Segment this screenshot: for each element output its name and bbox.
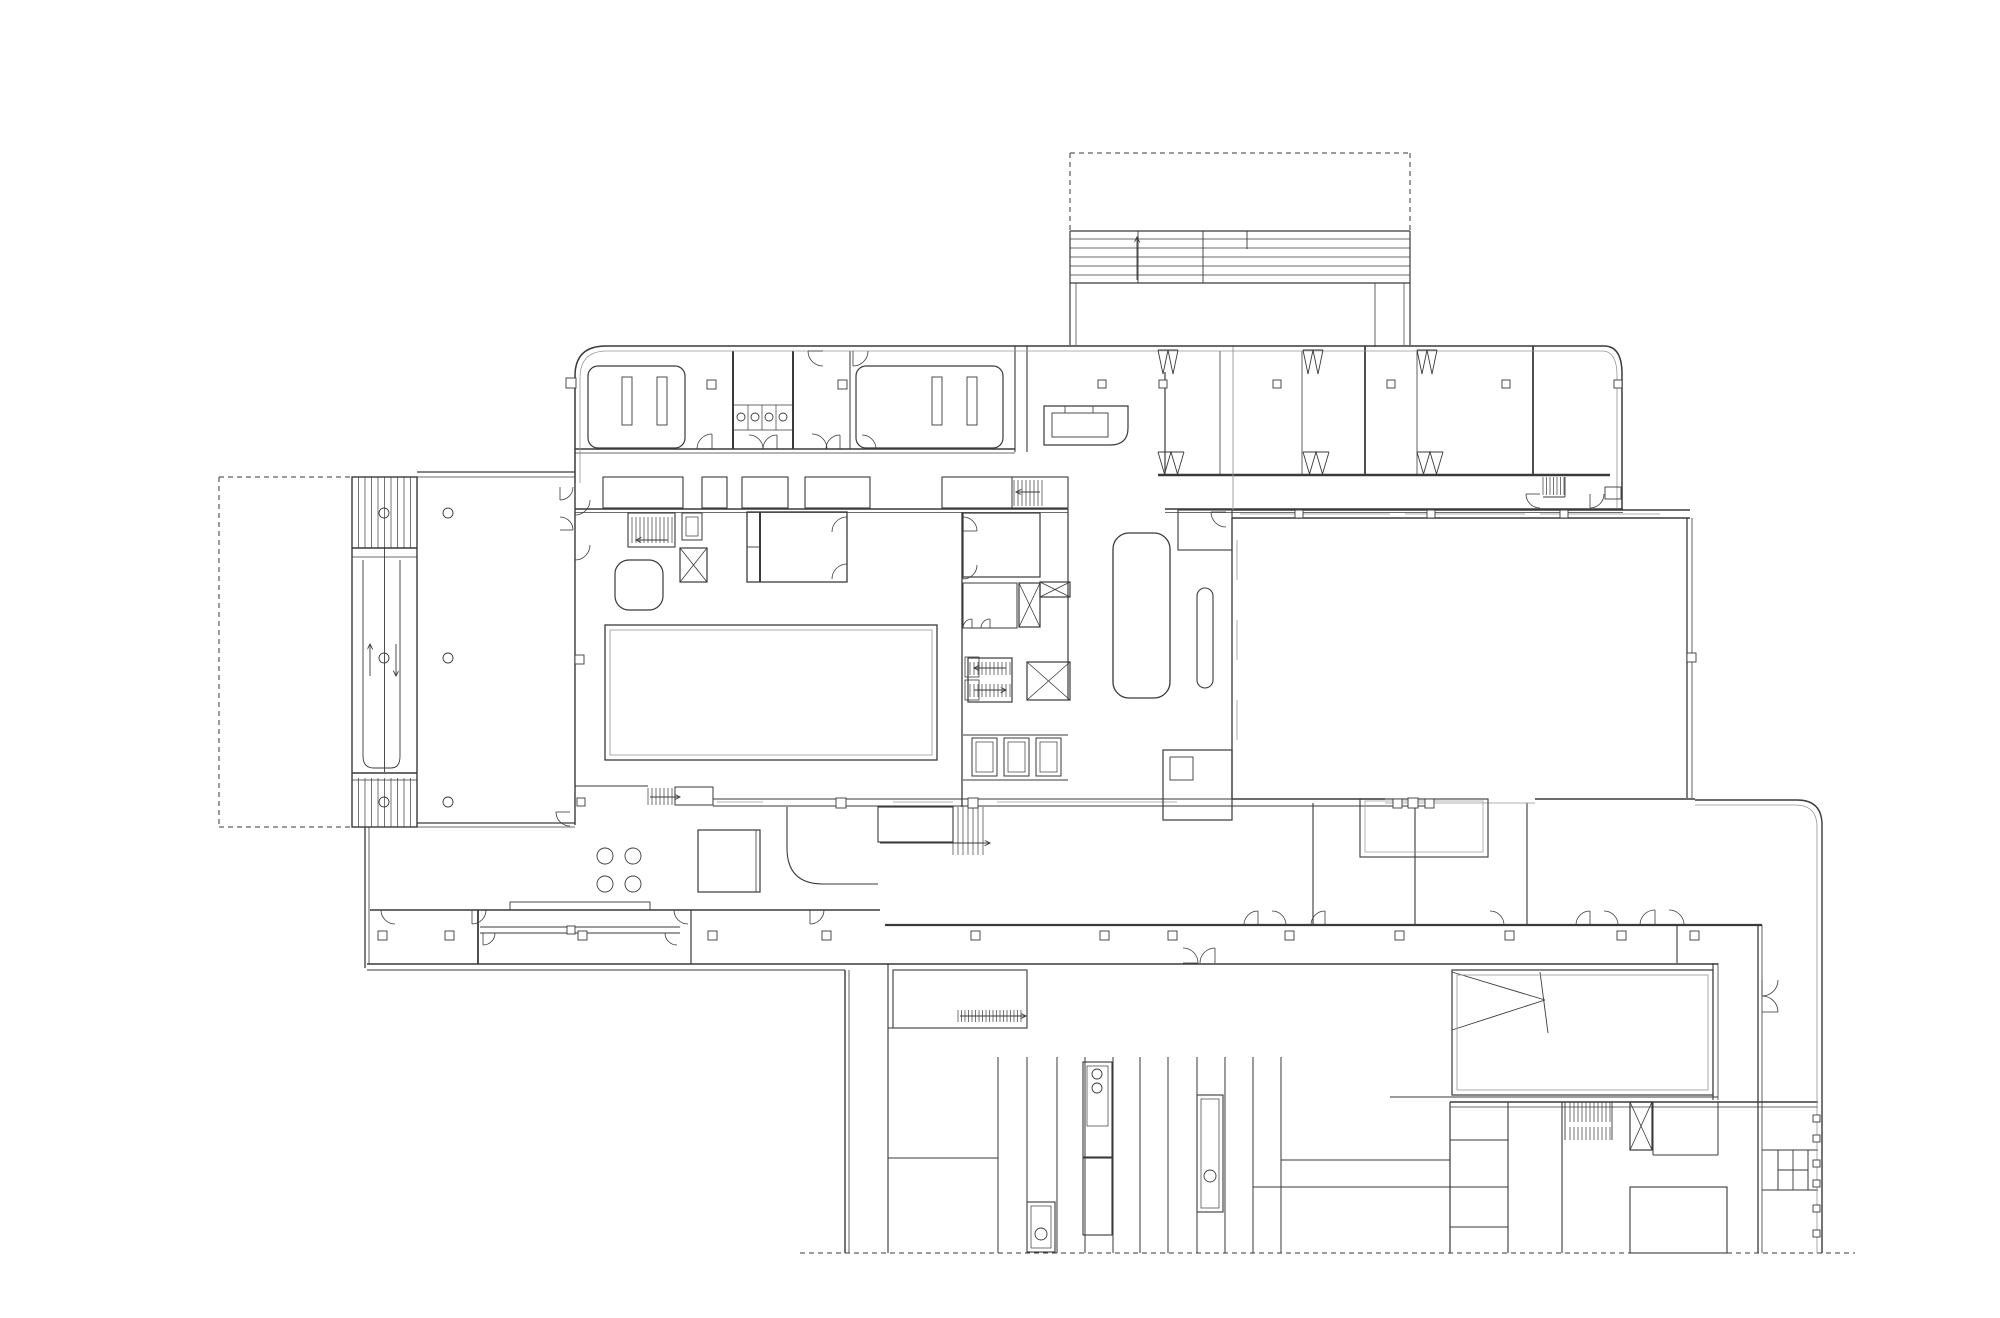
glazing-thin-lines-layer: [717, 346, 1660, 803]
column-and-fixture-circles-layer: [379, 413, 1216, 1240]
floor-plan-canvas: [0, 0, 2000, 1318]
folding-partition-zigzag-layer: [1158, 350, 1443, 474]
floor-plan-page: [0, 0, 2000, 1318]
column-squares-layer: [378, 378, 1820, 1237]
inner-rects-light-layer: [610, 630, 1708, 1090]
door-swing-arcs-layer: [381, 351, 1778, 1012]
site-boundary-dashed-lines: [219, 153, 1855, 1253]
elevator-shaft-x-layer: [680, 548, 1652, 1150]
